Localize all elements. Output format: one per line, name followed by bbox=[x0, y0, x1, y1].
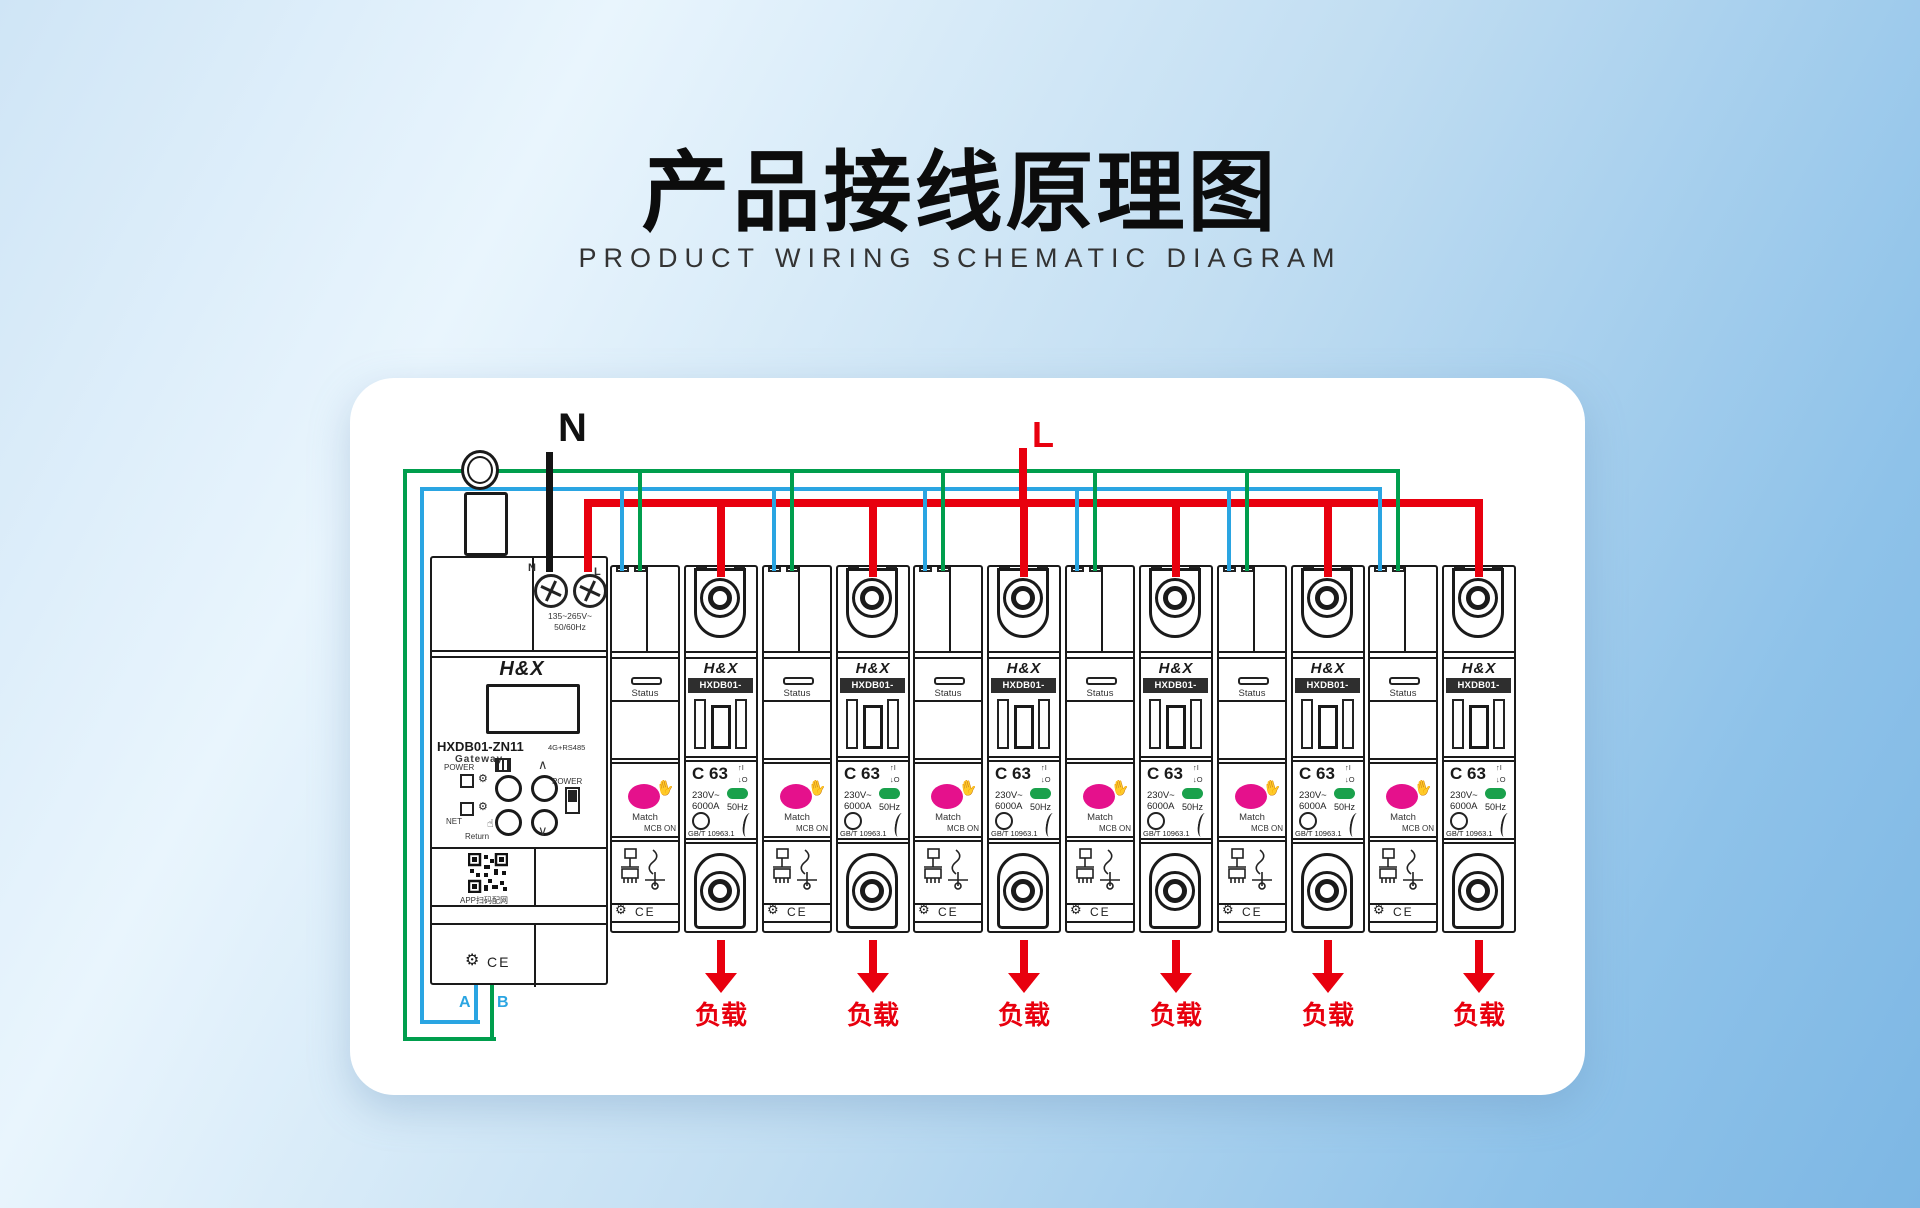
breaker-unit: Status ✋ Match MCB ON bbox=[762, 565, 910, 1035]
rating-label: C 63 bbox=[1450, 764, 1486, 784]
breaker-handle-right bbox=[735, 699, 747, 749]
frequency-label: 50Hz bbox=[1030, 802, 1051, 812]
net-led bbox=[460, 802, 474, 816]
frequency-label: 50Hz bbox=[879, 802, 900, 812]
load-arrow-head bbox=[1312, 973, 1344, 993]
breaker-handle-left bbox=[846, 699, 858, 749]
ce-mark: CE bbox=[938, 905, 959, 919]
gateway-live-drop-wire bbox=[584, 499, 592, 572]
rs485-a-drop-wire bbox=[1075, 487, 1079, 571]
rs485-a-drop-wire bbox=[620, 487, 624, 571]
gateway-button bbox=[495, 775, 522, 802]
match-label: Match bbox=[612, 812, 678, 823]
terminal-a-label: A bbox=[459, 994, 471, 1012]
mcb-on-label: MCB ON bbox=[614, 824, 676, 833]
voltage-label: 230V~ bbox=[692, 790, 720, 801]
live-drop-wire bbox=[1020, 499, 1028, 577]
gateway-device: N L 135~265V~ 50/60Hz H&X HXDB01-ZN11 Ga… bbox=[430, 556, 608, 985]
frequency-indicator bbox=[879, 788, 900, 799]
breaker-unit: Status ✋ Match MCB ON bbox=[913, 565, 1061, 1035]
power-led-label: POWER bbox=[444, 763, 474, 772]
chevron-up-icon: ∧ bbox=[538, 757, 548, 773]
hand-icon: ✋ bbox=[806, 777, 828, 798]
gear-icon: ⚙ bbox=[767, 902, 779, 918]
load-arrow-shaft bbox=[1475, 940, 1483, 973]
mcb-on-label: MCB ON bbox=[1372, 824, 1434, 833]
load-label: 负载 bbox=[1291, 995, 1365, 1032]
rating-label: C 63 bbox=[995, 764, 1031, 784]
breaker-handle bbox=[1318, 705, 1338, 749]
circuit-breaker: H&X HXDB01-ZN11 C 63 ↑I ↓O 230V~ 6000A 5… bbox=[836, 565, 910, 933]
on-marker: I bbox=[894, 763, 896, 772]
capacity-label: 6000A bbox=[844, 801, 871, 812]
hand-icon: ✋ bbox=[1261, 777, 1283, 798]
on-marker: I bbox=[1500, 763, 1502, 772]
voltage-label: 230V~ bbox=[1450, 790, 1478, 801]
companion-module: Status ✋ Match MCB ON bbox=[610, 565, 680, 933]
load-arrow-head bbox=[1008, 973, 1040, 993]
breaker-handle-right bbox=[1038, 699, 1050, 749]
frequency-label: 50Hz bbox=[1334, 802, 1355, 812]
rs485-b-drop-wire bbox=[1396, 469, 1400, 571]
breaker-handle-right bbox=[1342, 699, 1354, 749]
gateway-terminal-n-label: N bbox=[528, 562, 536, 574]
status-indicator bbox=[1086, 677, 1117, 685]
breaker-unit: Status ✋ Match MCB ON bbox=[610, 565, 758, 1035]
load-label: 负载 bbox=[987, 995, 1061, 1032]
off-marker: O bbox=[1045, 775, 1051, 784]
rating-label: C 63 bbox=[692, 764, 728, 784]
certification-mark bbox=[844, 812, 862, 830]
companion-module: Status ✋ Match MCB ON bbox=[762, 565, 832, 933]
capacity-label: 6000A bbox=[692, 801, 719, 812]
rs485-a-drop-wire bbox=[772, 487, 776, 571]
antenna-icon bbox=[461, 450, 499, 490]
gear-icon: ⚙ bbox=[1373, 902, 1385, 918]
page-title: 产品接线原理图 bbox=[0, 122, 1920, 249]
breaker-handle-right bbox=[1190, 699, 1202, 749]
breaker-brand: H&X bbox=[1141, 660, 1211, 677]
breaker-brand: H&X bbox=[1444, 660, 1514, 677]
load-arrow-shaft bbox=[717, 940, 725, 973]
voltage-label: 230V~ bbox=[1299, 790, 1327, 801]
gateway-voltage-range: 135~265V~ bbox=[532, 611, 608, 621]
gear-icon: ⚙ bbox=[918, 902, 930, 918]
status-indicator bbox=[1389, 677, 1420, 685]
load-arrow-shaft bbox=[1324, 940, 1332, 973]
certification-mark bbox=[1147, 812, 1165, 830]
terminal-a-stub-wire bbox=[474, 985, 478, 1024]
breaker-schematic-icon bbox=[1070, 848, 1128, 898]
rs485-b-drop-wire bbox=[941, 469, 945, 571]
status-indicator bbox=[783, 677, 814, 685]
live-drop-wire bbox=[1172, 499, 1180, 577]
gateway-toggle-switch bbox=[565, 787, 580, 814]
breaker-schematic-icon bbox=[767, 848, 825, 898]
antenna-base bbox=[464, 492, 508, 556]
certification-mark bbox=[995, 812, 1013, 830]
rs485-b-drop-wire bbox=[790, 469, 794, 571]
breaker-schematic-icon bbox=[1373, 848, 1431, 898]
breaker-model-badge: HXDB01-ZN11 bbox=[840, 678, 905, 693]
load-arrow-shaft bbox=[1020, 940, 1028, 973]
net-led-label: NET bbox=[446, 817, 462, 826]
breaker-model-badge: HXDB01-ZN11 bbox=[991, 678, 1056, 693]
breaker-handle bbox=[1469, 705, 1489, 749]
circuit-breaker: H&X HXDB01-ZN11 C 63 ↑I ↓O 230V~ 6000A 5… bbox=[684, 565, 758, 933]
match-label: Match bbox=[1219, 812, 1285, 823]
match-label: Match bbox=[1370, 812, 1436, 823]
ce-mark: CE bbox=[787, 905, 808, 919]
pointer-hand-icon: ☝ bbox=[487, 817, 494, 830]
menu-grid-icon bbox=[495, 758, 511, 772]
status-indicator bbox=[631, 677, 662, 685]
off-marker: O bbox=[742, 775, 748, 784]
match-label: Match bbox=[915, 812, 981, 823]
neutral-label: N bbox=[558, 406, 587, 451]
ce-mark: CE bbox=[1242, 905, 1263, 919]
certification-mark bbox=[692, 812, 710, 830]
breaker-handle bbox=[1166, 705, 1186, 749]
status-label: Status bbox=[612, 688, 678, 699]
on-marker: I bbox=[1349, 763, 1351, 772]
mcb-on-label: MCB ON bbox=[917, 824, 979, 833]
power-button-label: POWER bbox=[552, 777, 582, 786]
rs485-b-drop-wire bbox=[1245, 469, 1249, 571]
off-marker: O bbox=[1197, 775, 1203, 784]
on-marker: I bbox=[742, 763, 744, 772]
on-marker: I bbox=[1045, 763, 1047, 772]
rs485-b-drop-wire bbox=[638, 469, 642, 571]
status-label: Status bbox=[1219, 688, 1285, 699]
breaker-handle bbox=[1014, 705, 1034, 749]
mcb-on-label: MCB ON bbox=[766, 824, 828, 833]
companion-module: Status ✋ Match MCB ON bbox=[913, 565, 983, 933]
gateway-lcd-screen bbox=[486, 684, 580, 734]
match-label: Match bbox=[764, 812, 830, 823]
companion-module: Status ✋ Match MCB ON bbox=[1217, 565, 1287, 933]
breaker-handle-right bbox=[887, 699, 899, 749]
capacity-label: 6000A bbox=[1299, 801, 1326, 812]
rs485-a-left-wire bbox=[420, 487, 424, 1024]
gear-icon: ⚙ bbox=[465, 950, 479, 970]
load-arrow-shaft bbox=[869, 940, 877, 973]
companion-module: Status ✋ Match MCB ON bbox=[1368, 565, 1438, 933]
rs485-b-drop-wire bbox=[1093, 469, 1097, 571]
ce-mark: CE bbox=[1090, 905, 1111, 919]
rs485-a-drop-wire bbox=[1227, 487, 1231, 571]
capacity-label: 6000A bbox=[1147, 801, 1174, 812]
rs485-a-drop-wire bbox=[1378, 487, 1382, 571]
frequency-label: 50Hz bbox=[1182, 802, 1203, 812]
terminal-screw-n bbox=[534, 574, 568, 608]
frequency-indicator bbox=[1485, 788, 1506, 799]
rating-label: C 63 bbox=[844, 764, 880, 784]
mcb-on-label: MCB ON bbox=[1069, 824, 1131, 833]
breaker-model-badge: HXDB01-ZN11 bbox=[688, 678, 753, 693]
breaker-model-badge: HXDB01-ZN11 bbox=[1446, 678, 1511, 693]
rs485-a-bus-wire bbox=[420, 487, 1382, 491]
frequency-indicator bbox=[1182, 788, 1203, 799]
gear-icon: ⚙ bbox=[1222, 902, 1234, 918]
frequency-label: 50Hz bbox=[727, 802, 748, 812]
voltage-label: 230V~ bbox=[995, 790, 1023, 801]
live-drop-wire bbox=[1475, 499, 1483, 577]
live-feed-wire bbox=[1019, 448, 1027, 503]
frequency-indicator bbox=[1334, 788, 1355, 799]
frequency-indicator bbox=[727, 788, 748, 799]
mcb-on-label: MCB ON bbox=[1221, 824, 1283, 833]
ce-mark: CE bbox=[487, 954, 510, 970]
breaker-schematic-icon bbox=[1222, 848, 1280, 898]
terminal-screw-l bbox=[573, 574, 607, 608]
breaker-brand: H&X bbox=[686, 660, 756, 677]
capacity-label: 6000A bbox=[995, 801, 1022, 812]
gear-icon: ⚙ bbox=[478, 800, 488, 813]
load-label: 负载 bbox=[836, 995, 910, 1032]
off-marker: O bbox=[1349, 775, 1355, 784]
circuit-breaker: H&X HXDB01-ZN11 C 63 ↑I ↓O 230V~ 6000A 5… bbox=[1139, 565, 1213, 933]
certification-mark bbox=[1299, 812, 1317, 830]
load-label: 负载 bbox=[1139, 995, 1213, 1032]
breaker-handle-left bbox=[1301, 699, 1313, 749]
breaker-handle-right bbox=[1493, 699, 1505, 749]
gateway-comm-label: 4G+RS485 bbox=[548, 743, 585, 752]
breaker-model-badge: HXDB01-ZN11 bbox=[1295, 678, 1360, 693]
circuit-breaker: H&X HXDB01-ZN11 C 63 ↑I ↓O 230V~ 6000A 5… bbox=[1442, 565, 1516, 933]
breaker-handle-left bbox=[1149, 699, 1161, 749]
page: 产品接线原理图 PRODUCT WIRING SCHEMATIC DIAGRAM… bbox=[0, 0, 1920, 1208]
gear-icon: ⚙ bbox=[1070, 902, 1082, 918]
live-drop-wire bbox=[717, 499, 725, 577]
live-label: L bbox=[1032, 414, 1054, 456]
hand-icon: ✋ bbox=[1412, 777, 1434, 798]
status-label: Status bbox=[915, 688, 981, 699]
on-marker: I bbox=[1197, 763, 1199, 772]
rs485-a-bottom-wire bbox=[420, 1020, 480, 1024]
breaker-handle bbox=[863, 705, 883, 749]
breaker-schematic-icon bbox=[918, 848, 976, 898]
load-label: 负载 bbox=[1442, 995, 1516, 1032]
chevron-down-icon: ∨ bbox=[538, 823, 548, 839]
breaker-schematic-icon bbox=[615, 848, 673, 898]
load-label: 负载 bbox=[684, 995, 758, 1032]
gear-icon: ⚙ bbox=[615, 902, 627, 918]
page-subtitle: PRODUCT WIRING SCHEMATIC DIAGRAM bbox=[0, 243, 1920, 274]
breaker-handle-left bbox=[694, 699, 706, 749]
voltage-label: 230V~ bbox=[844, 790, 872, 801]
status-label: Status bbox=[1370, 688, 1436, 699]
hand-icon: ✋ bbox=[1109, 777, 1131, 798]
voltage-label: 230V~ bbox=[1147, 790, 1175, 801]
off-marker: O bbox=[894, 775, 900, 784]
neutral-feed-wire bbox=[546, 452, 553, 572]
frequency-indicator bbox=[1030, 788, 1051, 799]
circuit-breaker: H&X HXDB01-ZN11 C 63 ↑I ↓O 230V~ 6000A 5… bbox=[987, 565, 1061, 933]
terminal-b-stub-wire bbox=[490, 985, 494, 1041]
return-button-label: Return bbox=[465, 832, 489, 841]
status-label: Status bbox=[1067, 688, 1133, 699]
rs485-b-left-wire bbox=[403, 469, 407, 1041]
breaker-unit: Status ✋ Match MCB ON bbox=[1065, 565, 1213, 1035]
load-arrow-head bbox=[1160, 973, 1192, 993]
frequency-label: 50Hz bbox=[1485, 802, 1506, 812]
breaker-brand: H&X bbox=[1293, 660, 1363, 677]
status-label: Status bbox=[764, 688, 830, 699]
hand-icon: ✋ bbox=[957, 777, 979, 798]
status-indicator bbox=[1238, 677, 1269, 685]
rating-label: C 63 bbox=[1147, 764, 1183, 784]
rating-label: C 63 bbox=[1299, 764, 1335, 784]
hand-icon: ✋ bbox=[654, 777, 676, 798]
breaker-model-badge: HXDB01-ZN11 bbox=[1143, 678, 1208, 693]
rs485-b-bottom-wire bbox=[403, 1037, 496, 1041]
off-marker: O bbox=[1500, 775, 1506, 784]
status-indicator bbox=[934, 677, 965, 685]
load-arrow-head bbox=[1463, 973, 1495, 993]
breaker-brand: H&X bbox=[838, 660, 908, 677]
capacity-label: 6000A bbox=[1450, 801, 1477, 812]
live-drop-wire bbox=[869, 499, 877, 577]
qr-code bbox=[468, 853, 508, 893]
gear-icon: ⚙ bbox=[478, 772, 488, 785]
gateway-frequency: 50/60Hz bbox=[532, 622, 608, 632]
match-label: Match bbox=[1067, 812, 1133, 823]
circuit-breaker: H&X HXDB01-ZN11 C 63 ↑I ↓O 230V~ 6000A 5… bbox=[1291, 565, 1365, 933]
terminal-b-label: B bbox=[497, 994, 509, 1012]
breaker-handle bbox=[711, 705, 731, 749]
companion-module: Status ✋ Match MCB ON bbox=[1065, 565, 1135, 933]
live-drop-wire bbox=[1324, 499, 1332, 577]
gateway-button bbox=[495, 809, 522, 836]
gateway-brand: H&X bbox=[452, 658, 592, 681]
breaker-handle-left bbox=[1452, 699, 1464, 749]
ce-mark: CE bbox=[635, 905, 656, 919]
breaker-brand: H&X bbox=[989, 660, 1059, 677]
load-arrow-shaft bbox=[1172, 940, 1180, 973]
breaker-unit: Status ✋ Match MCB ON bbox=[1368, 565, 1516, 1035]
certification-mark bbox=[1450, 812, 1468, 830]
ce-mark: CE bbox=[1393, 905, 1414, 919]
power-led bbox=[460, 774, 474, 788]
load-arrow-head bbox=[857, 973, 889, 993]
rs485-a-drop-wire bbox=[923, 487, 927, 571]
load-arrow-head bbox=[705, 973, 737, 993]
gateway-model: HXDB01-ZN11 bbox=[437, 739, 524, 754]
breaker-unit: Status ✋ Match MCB ON bbox=[1217, 565, 1365, 1035]
breaker-handle-left bbox=[997, 699, 1009, 749]
